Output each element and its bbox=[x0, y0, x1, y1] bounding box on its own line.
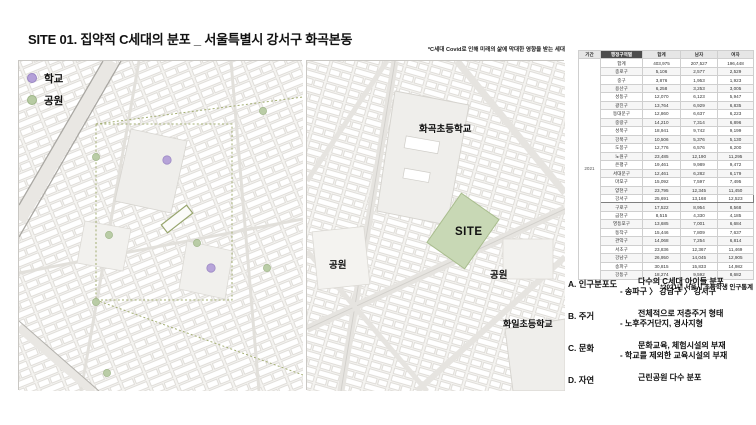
finding-label: D. 자연 bbox=[568, 374, 594, 386]
school-legend-icon bbox=[27, 73, 37, 83]
district-cell: 강북구 bbox=[601, 135, 643, 143]
value-cell: 12,461 bbox=[643, 169, 681, 177]
finding-item: D. 자연근린공원 다수 분포 bbox=[568, 373, 754, 392]
legend-label: 공원 bbox=[44, 93, 63, 108]
value-cell: 11,295 bbox=[718, 152, 754, 160]
finding-line1: 문화교육, 체험시설의 부재 bbox=[620, 341, 754, 351]
value-cell: 12,070 bbox=[643, 93, 681, 101]
park-plaza-shape bbox=[77, 221, 131, 271]
value-cell: 13,685 bbox=[643, 220, 681, 228]
slide-canvas: SITE 01. 집약적 C세대의 분포 _ 서울특별시 강서구 화곡본동 *C… bbox=[0, 0, 756, 425]
value-cell: 14,210 bbox=[643, 118, 681, 126]
value-cell: 12,776 bbox=[643, 144, 681, 152]
value-cell: 12,190 bbox=[681, 152, 718, 160]
table-row: 중구3,8761,9531,923 bbox=[579, 76, 754, 84]
value-cell: 12,345 bbox=[681, 186, 718, 194]
table-row: 성북구18,9419,7429,199 bbox=[579, 127, 754, 135]
value-cell: 7,597 bbox=[681, 178, 718, 186]
district-cell: 종로구 bbox=[601, 67, 643, 75]
table-row: 마포구15,0927,5977,495 bbox=[579, 178, 754, 186]
school-plaza-shape bbox=[179, 241, 233, 299]
district-cell: 구로구 bbox=[601, 203, 643, 211]
value-cell: 8,515 bbox=[643, 211, 681, 219]
value-cell: 7,254 bbox=[681, 237, 718, 245]
hwagok-school-label: 화곡초등학교 bbox=[419, 121, 471, 135]
value-cell: 14,068 bbox=[643, 237, 681, 245]
column-header: 합계 bbox=[643, 51, 681, 59]
value-cell: 3,005 bbox=[718, 84, 754, 92]
page-title: SITE 01. 집약적 C세대의 분포 _ 서울특별시 강서구 화곡본동 bbox=[28, 29, 352, 48]
value-cell: 3,253 bbox=[681, 84, 718, 92]
table-row: 도봉구12,7766,5766,200 bbox=[579, 144, 754, 152]
table-row: 영등포구13,6857,0016,684 bbox=[579, 220, 754, 228]
value-cell: 6,200 bbox=[718, 144, 754, 152]
value-cell: 6,576 bbox=[681, 144, 718, 152]
value-cell: 6,929 bbox=[681, 101, 718, 109]
site-label: SITE bbox=[455, 226, 483, 238]
value-cell: 1,923 bbox=[718, 76, 754, 84]
value-cell: 196,448 bbox=[718, 59, 754, 67]
table-row: 중랑구14,2107,3146,896 bbox=[579, 118, 754, 126]
value-cell: 17,522 bbox=[643, 203, 681, 211]
district-cell: 성북구 bbox=[601, 127, 643, 135]
value-cell: 11,450 bbox=[718, 186, 754, 194]
value-cell: 6,637 bbox=[681, 110, 718, 118]
table-row: 금천구8,5154,3304,185 bbox=[579, 211, 754, 219]
school-marker bbox=[163, 156, 171, 164]
mid-map-graphic bbox=[307, 61, 565, 391]
legend-item-park: 공원 bbox=[27, 89, 63, 111]
table-row: 양천구23,79512,34511,450 bbox=[579, 186, 754, 194]
district-cell: 중구 bbox=[601, 76, 643, 84]
stats-table: 기간행정구역별합계남자여자 2021합계403,975207,527196,44… bbox=[578, 50, 754, 280]
district-cell: 광진구 bbox=[601, 101, 643, 109]
table-row: 2021합계403,975207,527196,448 bbox=[579, 59, 754, 67]
value-cell: 5,106 bbox=[643, 67, 681, 75]
finding-description: 근린공원 다수 분포 bbox=[620, 373, 754, 383]
table-header-row: 기간행정구역별합계남자여자 bbox=[579, 51, 754, 59]
finding-line2: - 송파구 〉 강남구 〉 강서구 bbox=[620, 287, 754, 297]
value-cell: 8,568 bbox=[718, 203, 754, 211]
district-cell: 동작구 bbox=[601, 228, 643, 236]
value-cell: 4,330 bbox=[681, 211, 718, 219]
findings-list: A. 인구분포도다수의 C세대 아이들 분포- 송파구 〉 강남구 〉 강서구B… bbox=[568, 277, 754, 404]
value-cell: 19,461 bbox=[643, 161, 681, 169]
value-cell: 2,529 bbox=[718, 67, 754, 75]
district-cell: 서초구 bbox=[601, 245, 643, 253]
value-cell: 15,833 bbox=[681, 262, 718, 270]
generation-c-footnote: *C세대 Covid로 인해 미래의 삶에 막대한 영향을 받는 세대 bbox=[428, 45, 565, 53]
value-cell: 7,809 bbox=[681, 228, 718, 236]
table-row: 은평구19,4619,9899,472 bbox=[579, 161, 754, 169]
value-cell: 8,954 bbox=[681, 203, 718, 211]
value-cell: 13,764 bbox=[643, 101, 681, 109]
column-header: 남자 bbox=[681, 51, 718, 59]
district-cell: 노원구 bbox=[601, 152, 643, 160]
table-row: 용산구6,2583,2533,005 bbox=[579, 84, 754, 92]
value-cell: 30,815 bbox=[643, 262, 681, 270]
district-cell: 송파구 bbox=[601, 262, 643, 270]
finding-line2: - 노후주거단지, 경사지형 bbox=[620, 319, 754, 329]
table-row: 송파구30,81515,83314,982 bbox=[579, 262, 754, 270]
value-cell: 3,876 bbox=[643, 76, 681, 84]
value-cell: 7,637 bbox=[718, 228, 754, 236]
district-cell: 도봉구 bbox=[601, 144, 643, 152]
site-detail-map: 화곡초등학교 SITE 공원 공원 화일초등학교 bbox=[306, 60, 564, 390]
legend-label: 학교 bbox=[44, 71, 63, 86]
district-cell: 합계 bbox=[601, 59, 643, 67]
table-row: 성동구12,0706,1235,947 bbox=[579, 93, 754, 101]
value-cell: 5,130 bbox=[718, 135, 754, 143]
value-cell: 13,168 bbox=[681, 194, 718, 202]
district-overview-map: 학교 공원 bbox=[18, 60, 302, 390]
value-cell: 9,472 bbox=[718, 161, 754, 169]
district-cell: 관악구 bbox=[601, 237, 643, 245]
finding-line2: - 학교를 제외한 교육시설의 부재 bbox=[620, 351, 754, 361]
park-marker bbox=[259, 107, 266, 114]
park-marker bbox=[92, 153, 99, 160]
value-cell: 9,199 bbox=[718, 127, 754, 135]
table-row: 광진구13,7646,9296,835 bbox=[579, 101, 754, 109]
value-cell: 23,836 bbox=[643, 245, 681, 253]
value-cell: 6,814 bbox=[718, 237, 754, 245]
value-cell: 6,258 bbox=[643, 84, 681, 92]
table-row: 구로구17,5228,9548,568 bbox=[579, 203, 754, 211]
value-cell: 7,495 bbox=[718, 178, 754, 186]
district-cell: 양천구 bbox=[601, 186, 643, 194]
finding-label: A. 인구분포도 bbox=[568, 278, 617, 290]
value-cell: 4,185 bbox=[718, 211, 754, 219]
park-left-label: 공원 bbox=[329, 257, 346, 271]
value-cell: 9,742 bbox=[681, 127, 718, 135]
district-cell: 성동구 bbox=[601, 93, 643, 101]
value-cell: 7,314 bbox=[681, 118, 718, 126]
hwail-school-label: 화일초등학교 bbox=[503, 317, 553, 330]
value-cell: 12,860 bbox=[643, 110, 681, 118]
park-marker bbox=[92, 298, 99, 305]
district-cell: 강서구 bbox=[601, 194, 643, 202]
finding-item: A. 인구분포도다수의 C세대 아이들 분포- 송파구 〉 강남구 〉 강서구 bbox=[568, 277, 754, 297]
value-cell: 1,953 bbox=[681, 76, 718, 84]
finding-line1: 다수의 C세대 아이들 분포 bbox=[620, 277, 754, 287]
value-cell: 9,989 bbox=[681, 161, 718, 169]
value-cell: 6,223 bbox=[718, 110, 754, 118]
district-cell: 서대문구 bbox=[601, 169, 643, 177]
park-marker bbox=[193, 239, 200, 246]
table-row: 동작구15,4467,8097,637 bbox=[579, 228, 754, 236]
value-cell: 23,485 bbox=[643, 152, 681, 160]
value-cell: 15,446 bbox=[643, 228, 681, 236]
value-cell: 6,282 bbox=[681, 169, 718, 177]
district-cell: 동대문구 bbox=[601, 110, 643, 118]
value-cell: 25,691 bbox=[643, 194, 681, 202]
value-cell: 15,092 bbox=[643, 178, 681, 186]
table-row: 서초구23,83612,36711,469 bbox=[579, 245, 754, 253]
value-cell: 14,045 bbox=[681, 254, 718, 262]
table-row: 동대문구12,8606,6376,223 bbox=[579, 110, 754, 118]
value-cell: 12,523 bbox=[718, 194, 754, 202]
value-cell: 10,506 bbox=[643, 135, 681, 143]
value-cell: 14,982 bbox=[718, 262, 754, 270]
value-cell: 6,179 bbox=[718, 169, 754, 177]
finding-item: C. 문화문화교육, 체험시설의 부재- 학교를 제외한 교육시설의 부재 bbox=[568, 341, 754, 361]
table-row: 노원구23,48512,19011,295 bbox=[579, 152, 754, 160]
value-cell: 6,835 bbox=[718, 101, 754, 109]
table-row: 종로구5,1062,5772,529 bbox=[579, 67, 754, 75]
value-cell: 2,577 bbox=[681, 67, 718, 75]
value-cell: 5,947 bbox=[718, 93, 754, 101]
school-marker bbox=[207, 264, 215, 272]
column-header: 여자 bbox=[718, 51, 754, 59]
district-cell: 마포구 bbox=[601, 178, 643, 186]
finding-description: 문화교육, 체험시설의 부재- 학교를 제외한 교육시설의 부재 bbox=[620, 341, 754, 361]
value-cell: 7,001 bbox=[681, 220, 718, 228]
value-cell: 18,941 bbox=[643, 127, 681, 135]
column-header: 행정구역별 bbox=[601, 51, 643, 59]
population-stats-panel: 기간행정구역별합계남자여자 2021합계403,975207,527196,44… bbox=[578, 50, 753, 291]
value-cell: 5,376 bbox=[681, 135, 718, 143]
value-cell: 12,367 bbox=[681, 245, 718, 253]
district-cell: 강남구 bbox=[601, 254, 643, 262]
park-right-label: 공원 bbox=[490, 267, 507, 281]
park-legend-icon bbox=[27, 95, 37, 105]
finding-label: B. 주거 bbox=[568, 310, 594, 322]
table-row: 관악구14,0687,2546,814 bbox=[579, 237, 754, 245]
value-cell: 6,896 bbox=[718, 118, 754, 126]
district-cell: 용산구 bbox=[601, 84, 643, 92]
park-marker bbox=[263, 264, 270, 271]
finding-description: 전체적으로 저층주거 형태- 노후주거단지, 경사지형 bbox=[620, 309, 754, 329]
period-cell: 2021 bbox=[579, 59, 601, 279]
value-cell: 12,905 bbox=[718, 254, 754, 262]
finding-description: 다수의 C세대 아이들 분포- 송파구 〉 강남구 〉 강서구 bbox=[620, 277, 754, 297]
finding-line1: 전체적으로 저층주거 형태 bbox=[620, 309, 754, 319]
value-cell: 11,469 bbox=[718, 245, 754, 253]
table-row: 강북구10,5065,3765,130 bbox=[579, 135, 754, 143]
district-cell: 중랑구 bbox=[601, 118, 643, 126]
finding-line1: 근린공원 다수 분포 bbox=[620, 373, 754, 383]
value-cell: 207,527 bbox=[681, 59, 718, 67]
map-legend: 학교 공원 bbox=[27, 67, 63, 111]
table-row: 강남구26,95014,04512,905 bbox=[579, 254, 754, 262]
table-row: 서대문구12,4616,2826,179 bbox=[579, 169, 754, 177]
park-marker bbox=[103, 369, 110, 376]
legend-item-school: 학교 bbox=[27, 67, 63, 89]
finding-label: C. 문화 bbox=[568, 342, 594, 354]
value-cell: 6,123 bbox=[681, 93, 718, 101]
district-cell: 금천구 bbox=[601, 211, 643, 219]
finding-item: B. 주거전체적으로 저층주거 형태- 노후주거단지, 경사지형 bbox=[568, 309, 754, 329]
park-right-shape bbox=[503, 239, 553, 279]
district-cell: 영등포구 bbox=[601, 220, 643, 228]
district-cell: 은평구 bbox=[601, 161, 643, 169]
value-cell: 23,795 bbox=[643, 186, 681, 194]
value-cell: 26,950 bbox=[643, 254, 681, 262]
column-header: 기간 bbox=[579, 51, 601, 59]
park-marker bbox=[105, 231, 112, 238]
value-cell: 6,684 bbox=[718, 220, 754, 228]
value-cell: 403,975 bbox=[643, 59, 681, 67]
highlighted-table-row: 강서구25,69113,16812,523 bbox=[579, 194, 754, 202]
